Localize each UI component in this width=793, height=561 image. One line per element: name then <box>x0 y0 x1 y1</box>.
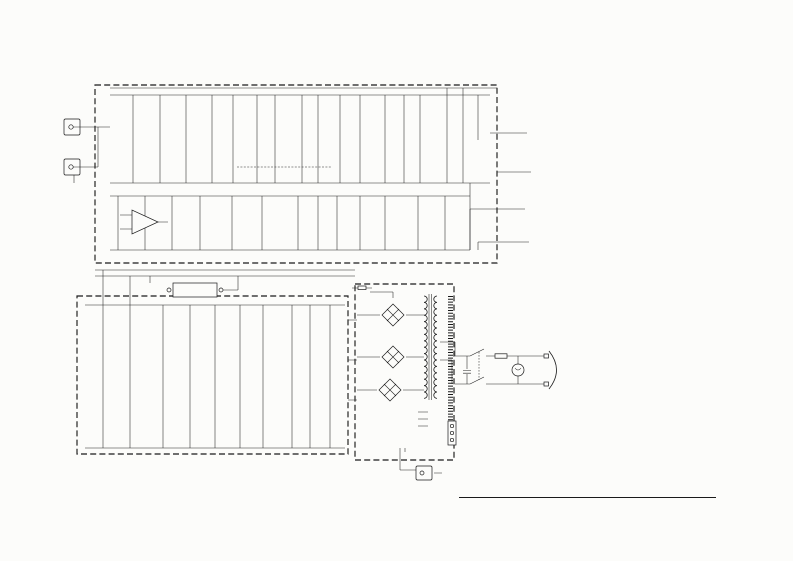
mains-fuse <box>358 286 366 290</box>
reverb-unit <box>167 283 223 297</box>
rec-out-jack-tip <box>420 471 424 475</box>
reverb-unit-coil-left <box>167 288 171 292</box>
paper-background <box>0 0 793 561</box>
chassis-connector <box>448 421 456 445</box>
chassis-connector-pin <box>450 431 453 434</box>
chassis-connector-pin <box>450 424 453 427</box>
reverb-unit-coil-right <box>219 288 223 292</box>
line-fuse <box>495 354 507 358</box>
input-jack-1-tip <box>69 125 73 129</box>
schematic-sheet: { "corner_models": ["G100-115 (S/N 1026~… <box>0 0 793 561</box>
schematic-canvas <box>0 0 793 561</box>
plug-prong-top <box>544 354 549 358</box>
rec-out <box>416 466 432 480</box>
input-jack-2-tip <box>69 165 73 169</box>
chassis-connector-pin <box>450 438 453 441</box>
reverb-unit-box <box>173 283 217 297</box>
plug-prong-bottom <box>544 382 549 386</box>
